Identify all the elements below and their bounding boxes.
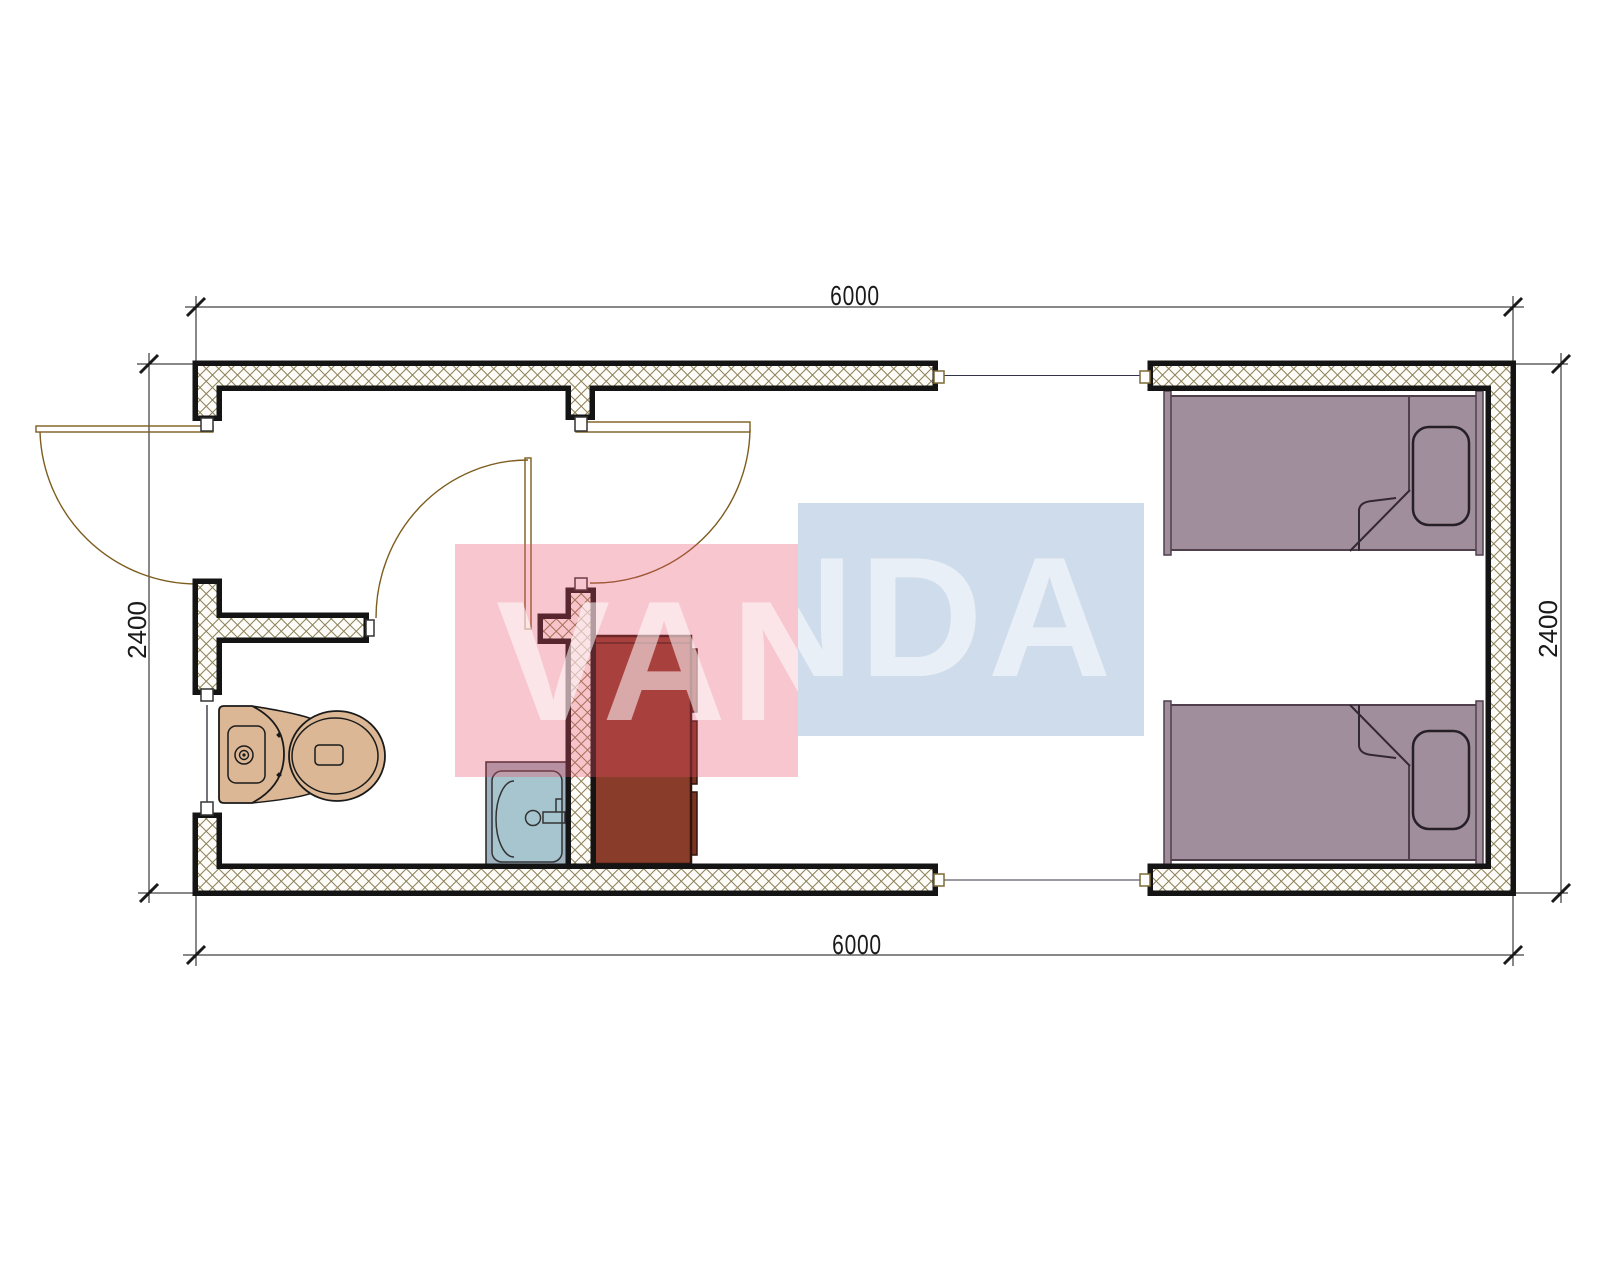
svg-text:6000: 6000 [832,930,882,961]
svg-text:2400: 2400 [1533,600,1563,658]
svg-text:2400: 2400 [122,601,152,659]
svg-text:6000: 6000 [830,281,880,312]
